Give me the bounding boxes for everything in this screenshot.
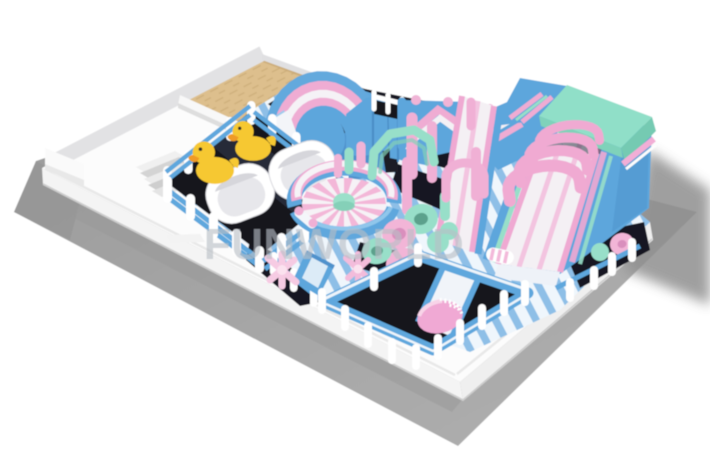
svg-text:FUNWORLD: FUNWORLD: [204, 220, 465, 269]
